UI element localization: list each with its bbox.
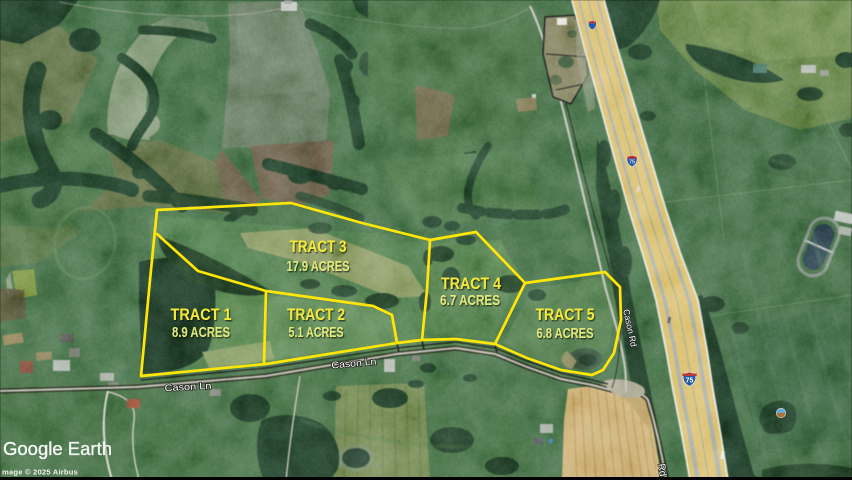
svg-text:TRACT 4: TRACT 4 <box>441 274 501 293</box>
svg-text:75: 75 <box>629 160 635 166</box>
svg-text:75: 75 <box>686 378 694 385</box>
svg-text:mage © 2025 Airbus: mage © 2025 Airbus <box>2 468 78 477</box>
svg-text:TRACT 3: TRACT 3 <box>290 237 347 256</box>
svg-text:6.8 ACRES: 6.8 ACRES <box>537 325 594 342</box>
svg-text:TRACT 5: TRACT 5 <box>536 305 595 324</box>
svg-text:6.7 ACRES: 6.7 ACRES <box>440 292 500 309</box>
svg-text:TRACT 1: TRACT 1 <box>171 305 232 324</box>
svg-text:Google Earth: Google Earth <box>3 438 112 459</box>
svg-text:Rd: Rd <box>655 463 667 477</box>
svg-text:8.9 ACRES: 8.9 ACRES <box>172 324 230 341</box>
svg-text:TRACT 2: TRACT 2 <box>287 305 345 324</box>
svg-text:17.9 ACRES: 17.9 ACRES <box>287 258 350 275</box>
svg-text:5.1 ACRES: 5.1 ACRES <box>289 324 344 341</box>
